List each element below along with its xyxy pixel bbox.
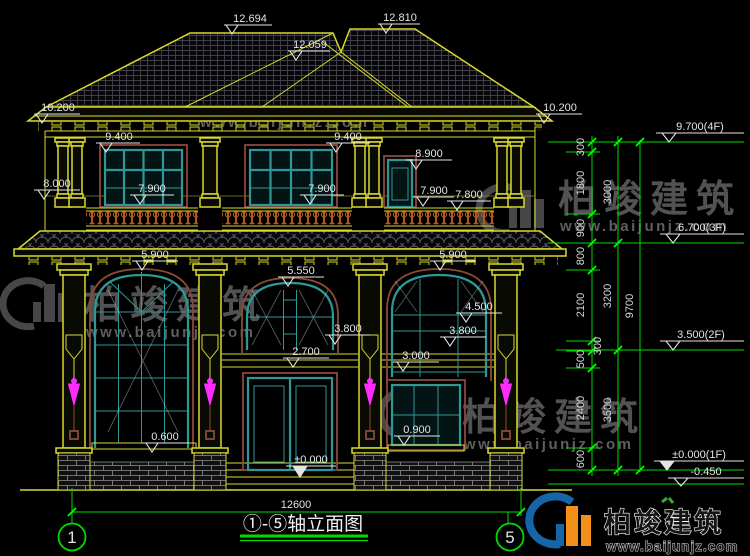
logo-building-icon bbox=[581, 515, 591, 546]
chain-dim: 900 bbox=[575, 219, 587, 237]
lamp-icon bbox=[368, 379, 373, 384]
mark-win3-left: 9.400 bbox=[96, 131, 140, 152]
mark-rail3: 7.900 bbox=[413, 185, 454, 206]
watermark-left: 柏竣建筑 www.baijunjz.com bbox=[3, 281, 268, 341]
elevation-drawing: 柏竣建筑 www.baijunjz.com 柏竣建筑 www.baijunjz.… bbox=[0, 0, 750, 556]
axis-number-left: 1 bbox=[67, 528, 76, 547]
lamp-icon bbox=[504, 379, 509, 384]
lower-fascia bbox=[14, 249, 566, 256]
main-roof bbox=[46, 29, 534, 108]
svg-text:2.700: 2.700 bbox=[292, 346, 320, 358]
svg-text:12.810: 12.810 bbox=[383, 12, 417, 24]
eave-fascia bbox=[28, 107, 552, 121]
svg-text:6.700(3F): 6.700(3F) bbox=[678, 222, 726, 234]
svg-text:7.900: 7.900 bbox=[308, 183, 336, 195]
chain-dim: 600 bbox=[575, 450, 587, 468]
svg-text:10.200: 10.200 bbox=[41, 102, 75, 114]
window-1f-right bbox=[387, 380, 465, 451]
svg-text:10.200: 10.200 bbox=[543, 102, 577, 114]
mark-transom-right: 3.800 bbox=[440, 325, 486, 346]
svg-text:7.800: 7.800 bbox=[455, 189, 483, 201]
eave-dentils bbox=[38, 122, 542, 131]
chain-dim: 300 bbox=[592, 337, 604, 355]
chain-dim-overall: 9700 bbox=[624, 294, 636, 318]
svg-text:5.550: 5.550 bbox=[287, 265, 315, 277]
watermark-url: www.baijunjz.com bbox=[85, 324, 255, 341]
brand-logo: 柏竣建筑 www.baijunjz.com bbox=[529, 496, 738, 554]
flag-4f: 9.700(4F) bbox=[656, 121, 744, 142]
stone-base-right bbox=[386, 462, 490, 490]
chain-dim: 800 bbox=[575, 247, 587, 265]
mark-roof-left: 12.694 bbox=[224, 13, 272, 34]
chain-dim: 2400 bbox=[575, 396, 587, 420]
bottom-dimension: 12600 1 5 ①-⑤轴立面图 bbox=[59, 488, 526, 551]
lower-dentils bbox=[22, 257, 558, 265]
stone-base-left bbox=[90, 462, 194, 490]
third-floor bbox=[55, 138, 524, 230]
drawing-title: ①-⑤轴立面图 bbox=[243, 513, 363, 535]
chain-dim: 3000 bbox=[602, 180, 614, 204]
chain-dim: 500 bbox=[575, 350, 587, 368]
svg-text:3.800: 3.800 bbox=[334, 323, 362, 335]
roof-outline bbox=[46, 29, 534, 107]
mark-door1: 2.700 bbox=[283, 346, 329, 367]
svg-text:7.900: 7.900 bbox=[420, 185, 448, 197]
lamp-icon bbox=[72, 379, 77, 384]
lower-roof-band bbox=[14, 231, 566, 265]
logo-building-icon bbox=[566, 506, 578, 546]
lamp-icon bbox=[208, 379, 213, 384]
svg-text:0.600: 0.600 bbox=[151, 431, 179, 443]
svg-text:3.000: 3.000 bbox=[402, 350, 430, 362]
logo-building-icon bbox=[556, 524, 564, 546]
third-floor-window-mid bbox=[245, 145, 337, 207]
logo-swoosh-icon bbox=[529, 496, 572, 544]
svg-text:3.800: 3.800 bbox=[449, 325, 477, 337]
svg-text:5.900: 5.900 bbox=[439, 249, 467, 261]
svg-text:0.900: 0.900 bbox=[403, 424, 431, 436]
svg-text:±0.000(1F): ±0.000(1F) bbox=[672, 449, 726, 461]
svg-text:7.900: 7.900 bbox=[138, 183, 166, 195]
svg-text:4.500: 4.500 bbox=[465, 301, 493, 313]
svg-text:8.000: 8.000 bbox=[43, 178, 71, 190]
svg-text:3.500(2F): 3.500(2F) bbox=[677, 329, 725, 341]
logo-green-accent bbox=[662, 498, 673, 503]
chain-dim: 1800 bbox=[575, 171, 587, 195]
svg-text:5.900: 5.900 bbox=[141, 249, 169, 261]
brand-url: www.baijunjz.com bbox=[605, 539, 739, 554]
svg-text:8.900: 8.900 bbox=[415, 148, 443, 160]
svg-text:±0.000: ±0.000 bbox=[294, 454, 328, 466]
svg-text:9.700(4F): 9.700(4F) bbox=[676, 121, 724, 133]
cad-elevation-screenshot: 柏竣建筑 www.baijunjz.com 柏竣建筑 www.baijunjz.… bbox=[0, 0, 750, 556]
watermark-brand: 柏竣建筑 bbox=[84, 285, 268, 327]
flag-2f: 3.500(2F) bbox=[660, 329, 744, 350]
tile-band bbox=[18, 231, 562, 249]
svg-text:9.400: 9.400 bbox=[334, 131, 362, 143]
chain-dim: 2100 bbox=[575, 293, 587, 317]
window-sill bbox=[92, 443, 196, 449]
third-floor-window-left bbox=[100, 145, 187, 207]
watermark-logo-icon bbox=[3, 281, 68, 327]
chain-dim: 3200 bbox=[602, 284, 614, 308]
flag-ground: -0.450 bbox=[668, 466, 744, 486]
overall-dimension: 12600 bbox=[281, 499, 312, 511]
third-floor-door bbox=[384, 156, 416, 207]
balcony-railing bbox=[86, 208, 494, 230]
chain-dim: 3500 bbox=[602, 398, 614, 422]
axis-number-right: 5 bbox=[505, 528, 514, 547]
svg-text:9.400: 9.400 bbox=[105, 131, 133, 143]
chain-dim: 300 bbox=[575, 138, 587, 156]
svg-text:12.694: 12.694 bbox=[233, 13, 267, 25]
floor-band-mid bbox=[222, 354, 358, 367]
brand-name: 柏竣建筑 bbox=[604, 507, 724, 538]
svg-text:-0.450: -0.450 bbox=[690, 466, 721, 478]
svg-text:12.059: 12.059 bbox=[293, 39, 327, 51]
